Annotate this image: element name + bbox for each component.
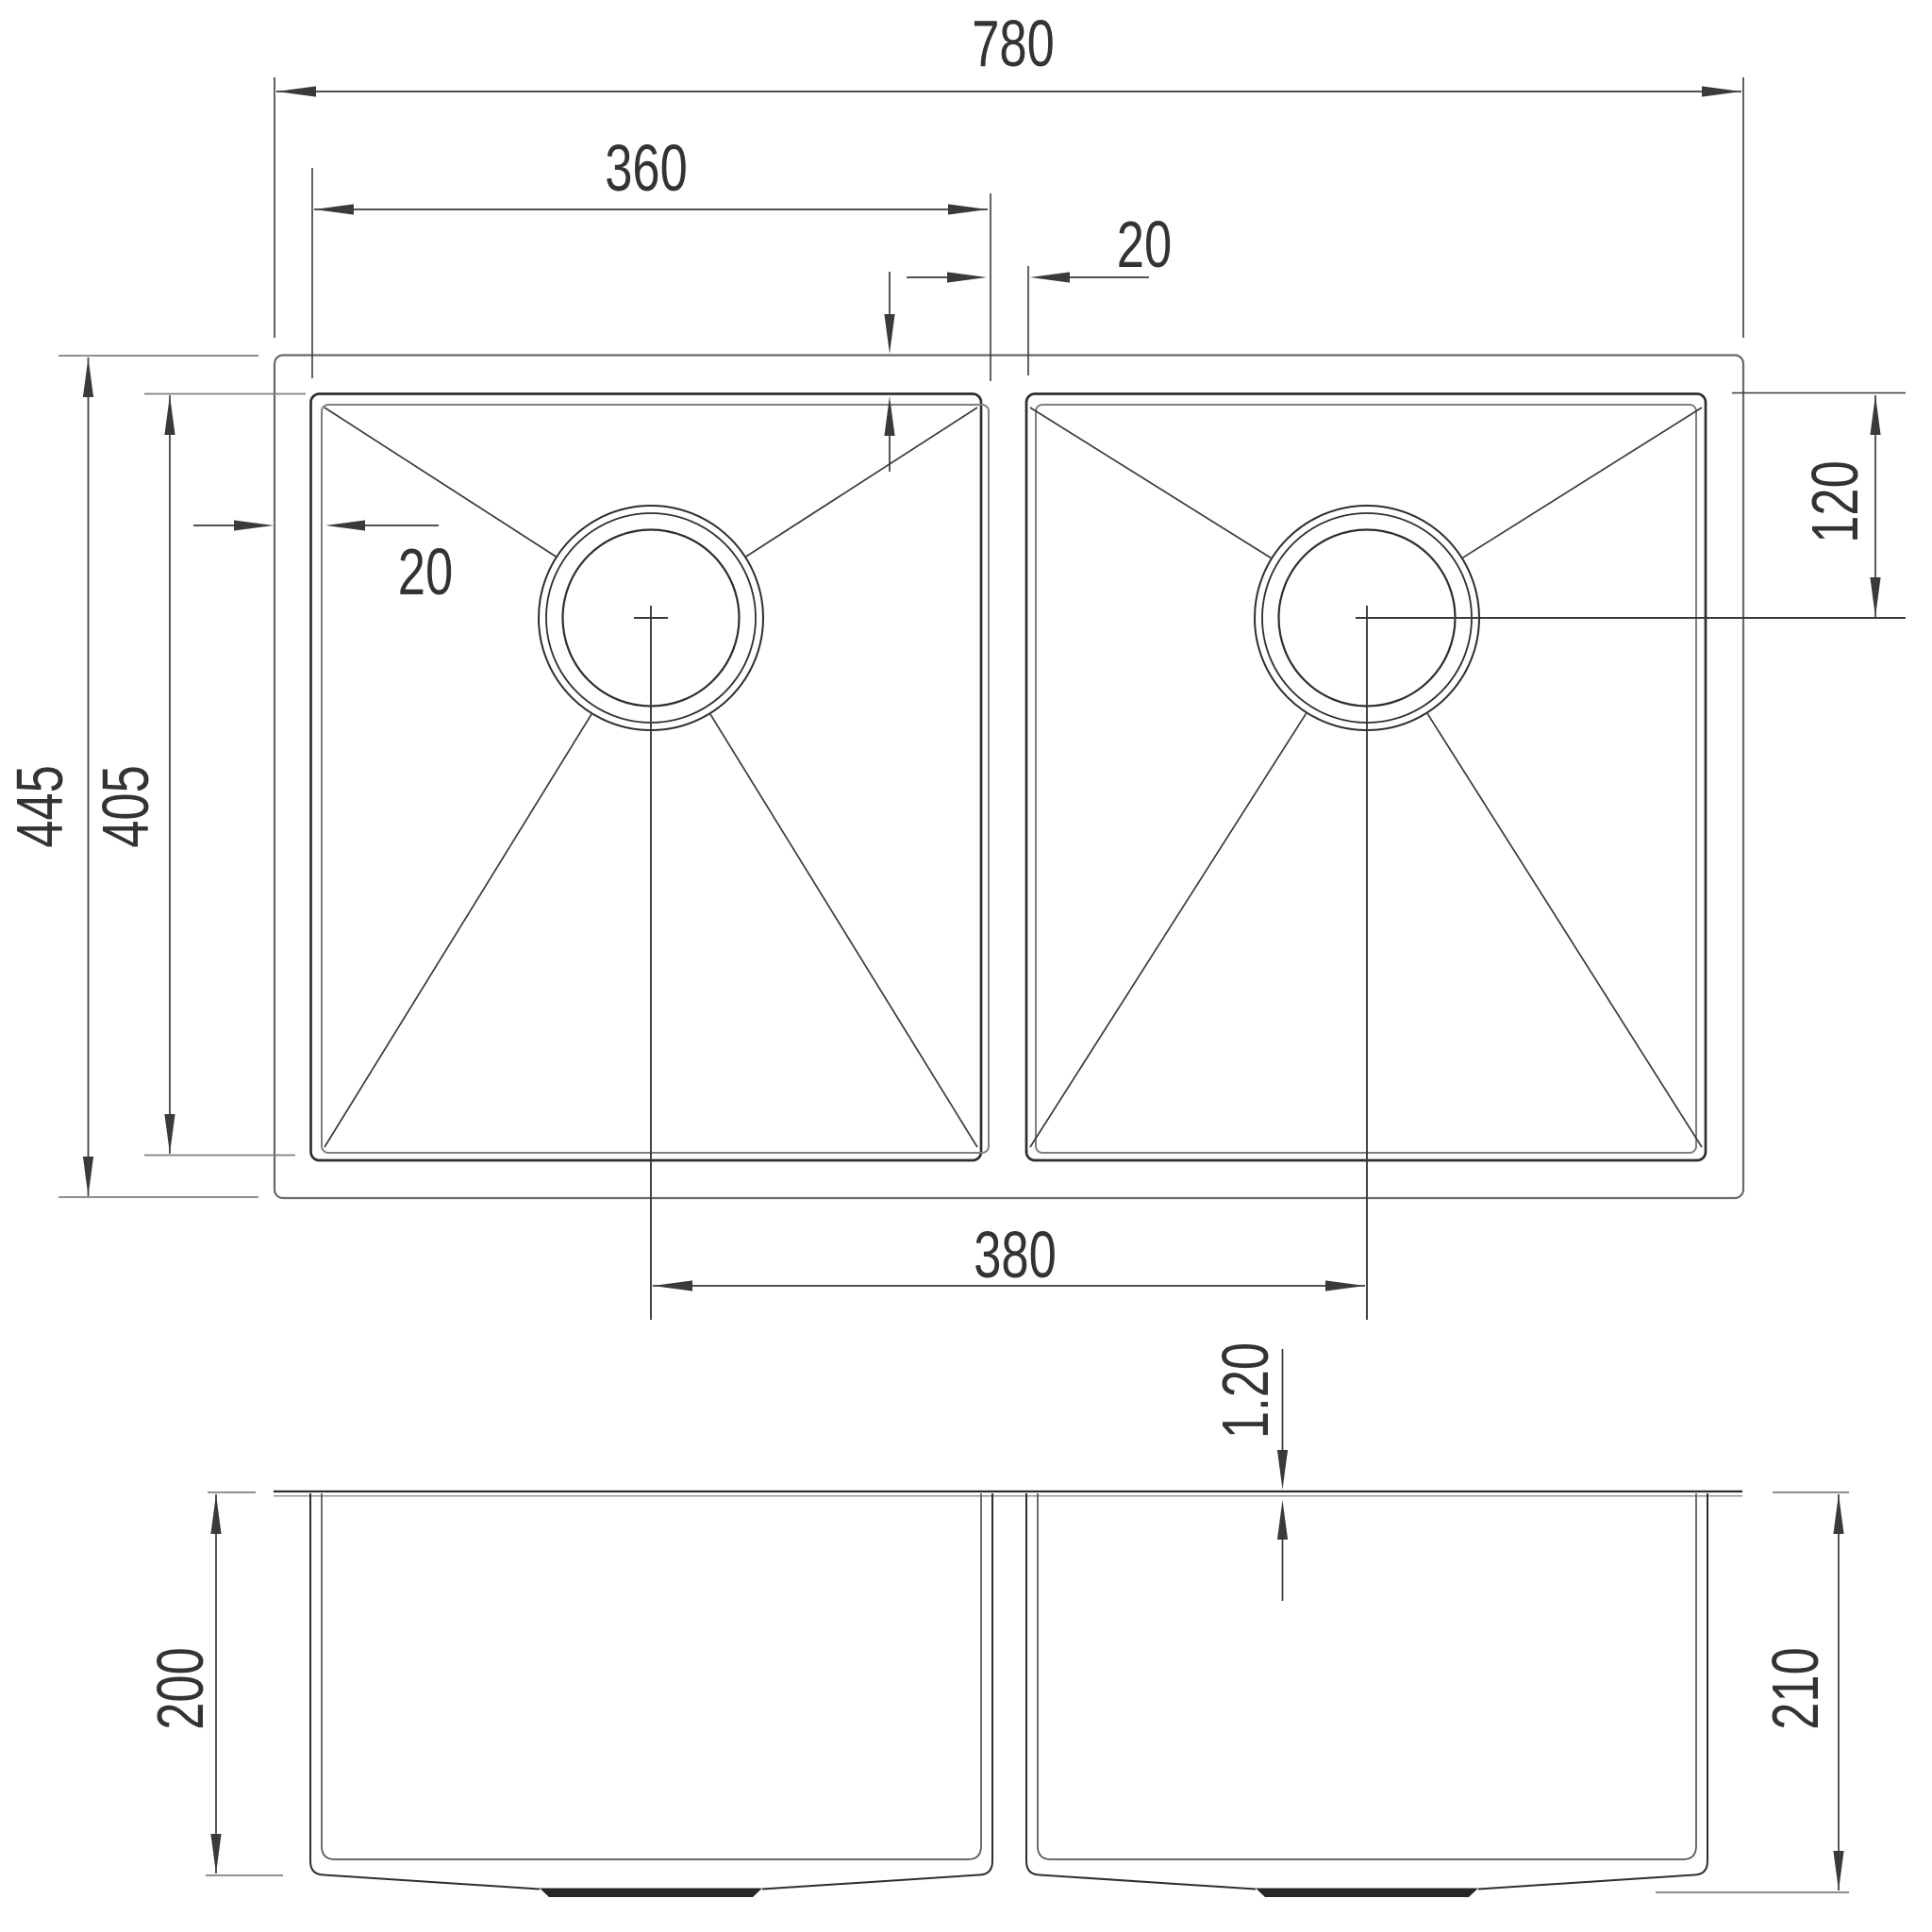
svg-text:1.20: 1.20 bbox=[1209, 1342, 1283, 1439]
svg-text:405: 405 bbox=[90, 765, 163, 848]
svg-text:445: 445 bbox=[4, 765, 77, 848]
svg-text:780: 780 bbox=[972, 8, 1055, 81]
svg-text:200: 200 bbox=[144, 1647, 218, 1730]
svg-text:380: 380 bbox=[974, 1219, 1057, 1292]
svg-text:360: 360 bbox=[605, 132, 688, 206]
svg-text:20: 20 bbox=[1117, 208, 1172, 282]
svg-text:120: 120 bbox=[1799, 460, 1873, 543]
svg-text:20: 20 bbox=[398, 536, 453, 609]
svg-text:210: 210 bbox=[1759, 1647, 1833, 1730]
